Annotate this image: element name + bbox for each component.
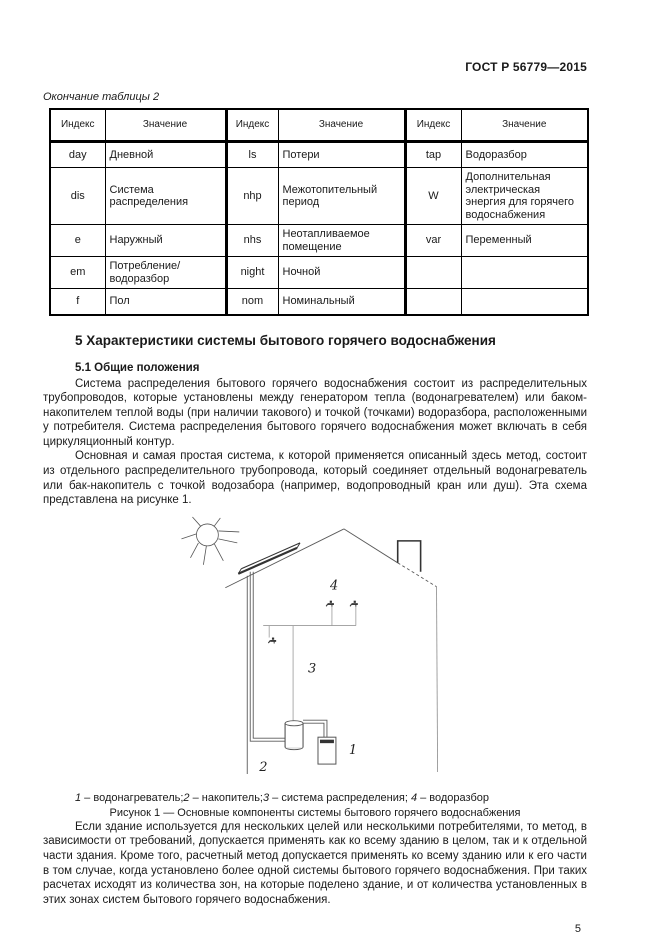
tap-icon — [350, 601, 358, 607]
legend-text: – водонагреватель; — [81, 792, 183, 804]
index-cell: nhp — [226, 168, 278, 225]
document-page: ГОСТ Р 56779—2015 Окончание таблицы 2 Ин… — [0, 0, 661, 935]
value-cell: Межотопительный период — [278, 168, 405, 225]
index-cell: nhs — [226, 225, 278, 257]
label-distribution: 3 — [308, 661, 316, 676]
figure-legend: 1 – водонагреватель;2 – накопитель;3 – с… — [75, 792, 587, 805]
index-cell — [405, 289, 461, 315]
table-row: emПотребление/ водоразборnightНочной — [50, 257, 588, 289]
index-cell: em — [50, 257, 105, 289]
sun-icon — [181, 517, 239, 565]
table-row: eНаружныйnhsНеотапливаемое помещениеvarП… — [50, 225, 588, 257]
table-continuation-label: Окончание таблицы 2 — [43, 91, 587, 103]
legend-text: – система распределения; — [269, 792, 411, 804]
value-cell: Неотапливаемое помещение — [278, 225, 405, 257]
value-cell: Потребление/ водоразбор — [105, 257, 226, 289]
table-header-row: Индекс Значение Индекс Значение Индекс З… — [50, 109, 588, 142]
chimney — [398, 541, 421, 572]
section-heading: 5 Характеристики системы бытового горяче… — [75, 333, 587, 348]
value-cell: Дневной — [105, 142, 226, 168]
index-cell: W — [405, 168, 461, 225]
label-tap: 4 — [329, 579, 338, 594]
solar-collector — [238, 543, 300, 574]
column-header: Значение — [278, 109, 405, 142]
column-header: Значение — [461, 109, 588, 142]
water-heater — [318, 737, 336, 764]
tap-icon — [326, 601, 334, 607]
index-cell: nom — [226, 289, 278, 315]
index-cell: tap — [405, 142, 461, 168]
column-header: Индекс — [50, 109, 105, 142]
legend-text: – водоразбор — [417, 792, 489, 804]
index-cell — [405, 257, 461, 289]
storage-tank — [285, 720, 303, 749]
value-cell: Ночной — [278, 257, 405, 289]
value-cell: Наружный — [105, 225, 226, 257]
value-cell: Переменный — [461, 225, 588, 257]
value-cell: Потери — [278, 142, 405, 168]
value-cell — [461, 289, 588, 315]
value-cell: Пол — [105, 289, 226, 315]
paragraph: Если здание используется для нескольких … — [43, 820, 587, 908]
figure-1: 4 3 1 2 1 – водонагреватель;2 – накопите… — [43, 510, 587, 820]
doc-code-header: ГОСТ Р 56779—2015 — [43, 60, 587, 74]
symbols-table: Индекс Значение Индекс Значение Индекс З… — [49, 108, 589, 316]
index-cell: ls — [226, 142, 278, 168]
figure-caption: Рисунок 1 — Основные компоненты системы … — [43, 807, 587, 820]
page-number: 5 — [43, 923, 587, 935]
table-row: dayДневнойlsПотериtapВодоразбор — [50, 142, 588, 168]
label-heater: 1 — [349, 743, 357, 758]
index-cell: day — [50, 142, 105, 168]
paragraph: Система распределения бытового горячего … — [43, 377, 587, 450]
index-cell: e — [50, 225, 105, 257]
value-cell: Система распределения — [105, 168, 226, 225]
index-cell: var — [405, 225, 461, 257]
index-cell: dis — [50, 168, 105, 225]
column-header: Индекс — [226, 109, 278, 142]
index-cell: night — [226, 257, 278, 289]
collector-pipes — [250, 572, 285, 741]
value-cell: Водоразбор — [461, 142, 588, 168]
house-diagram: 4 3 1 2 — [150, 510, 480, 786]
index-cell: f — [50, 289, 105, 315]
symbols-table-body: dayДневнойlsПотериtapВодоразборdisСистем… — [50, 142, 588, 315]
table-row: disСистема распределенияnhpМежотопительн… — [50, 168, 588, 225]
column-header: Индекс — [405, 109, 461, 142]
value-cell: Номинальный — [278, 289, 405, 315]
tap-icon — [268, 637, 276, 643]
sub-heading: 5.1 Общие положения — [75, 362, 587, 374]
value-cell — [461, 257, 588, 289]
paragraph: Основная и самая простая система, к кото… — [43, 449, 587, 507]
table-row: fПолnomНоминальный — [50, 289, 588, 315]
column-header: Значение — [105, 109, 226, 142]
value-cell: Дополнительная электрическая энергия для… — [461, 168, 588, 225]
legend-text: – накопитель; — [190, 792, 263, 804]
tank-heater-pipe — [303, 720, 327, 737]
label-tank: 2 — [258, 760, 267, 775]
